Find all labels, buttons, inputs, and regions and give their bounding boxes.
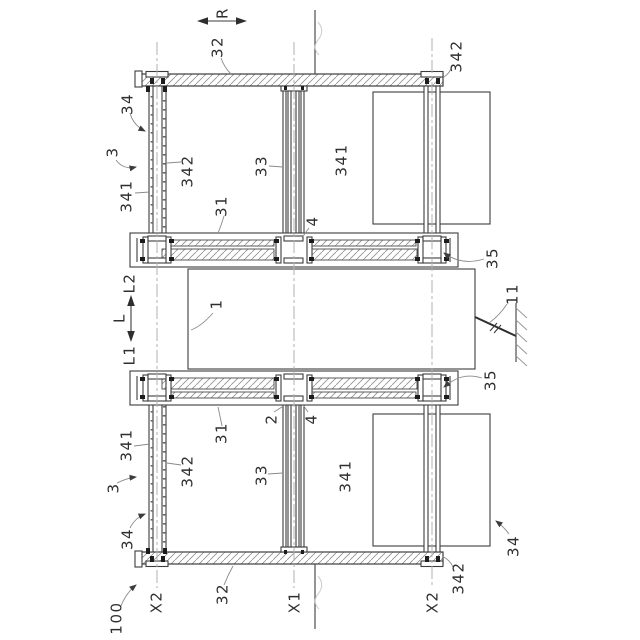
bolt-head xyxy=(140,395,145,399)
bolt-head xyxy=(301,550,304,554)
thread-tick xyxy=(163,118,166,120)
label-post-top: 33 xyxy=(252,155,270,177)
thread-tick xyxy=(151,141,154,143)
bolt-head xyxy=(146,86,150,92)
label-panel-top-right: 341 xyxy=(332,143,350,176)
beam-bottom xyxy=(135,547,443,567)
label-l1: L1 xyxy=(120,345,138,366)
thread-tick xyxy=(151,96,154,98)
bolt-head xyxy=(150,78,154,84)
technical-drawing: R 32 342 34 3 342 341 33 341 31 4 35 11 … xyxy=(0,0,640,640)
bolt-head xyxy=(444,239,449,243)
thread-tick xyxy=(151,501,154,503)
thread-tick xyxy=(163,514,166,516)
thread-tick xyxy=(151,159,154,161)
label-panel-assembly-bottom: 3 xyxy=(104,482,122,493)
label-axis-x1: X1 xyxy=(285,591,303,614)
rail-strip xyxy=(308,378,417,389)
label-l2: L2 xyxy=(120,273,138,294)
thread-tick xyxy=(151,429,154,431)
bolt-head xyxy=(161,556,165,562)
label-apparatus: 100 xyxy=(107,601,125,634)
thread-tick xyxy=(163,478,166,480)
rail-strip xyxy=(308,392,416,398)
label-direction-r: R xyxy=(213,7,231,19)
label-panel-bottom-right: 341 xyxy=(336,459,354,492)
bolt-head xyxy=(436,78,440,84)
thread-tick xyxy=(151,465,154,467)
thread-tick xyxy=(151,474,154,476)
thread-tick xyxy=(151,114,154,116)
thread-tick xyxy=(163,199,166,201)
label-hanger-rod-bottom-left: 342 xyxy=(178,454,196,487)
bolt-head xyxy=(309,257,314,261)
label-beam-top: 32 xyxy=(208,36,226,58)
length-arrow-l xyxy=(127,295,135,342)
thread-tick xyxy=(163,523,166,525)
thread-tick xyxy=(151,492,154,494)
label-panel-top-left: 341 xyxy=(117,179,135,212)
thread-tick xyxy=(151,123,154,125)
thread-tick xyxy=(151,204,154,206)
bolt-head xyxy=(444,395,449,399)
thread-tick xyxy=(151,537,154,539)
rail-strip xyxy=(162,249,274,260)
bolt-head xyxy=(163,548,167,554)
thread-tick xyxy=(151,213,154,215)
thread-tick xyxy=(163,460,166,462)
bolt-head xyxy=(163,86,167,92)
label-panel-bottom-left: 341 xyxy=(117,428,135,461)
label-l: L xyxy=(110,313,128,323)
thread-tick xyxy=(163,145,166,147)
bolt-head xyxy=(284,86,287,90)
bolt-head xyxy=(169,239,174,243)
thread-tick xyxy=(151,177,154,179)
thread-tick xyxy=(151,105,154,107)
label-base-body: 1 xyxy=(207,298,225,309)
thread-tick xyxy=(151,519,154,521)
label-rail-top: 31 xyxy=(212,195,230,217)
thread-tick xyxy=(151,438,154,440)
label-joint-top: 4 xyxy=(303,215,321,226)
thread-tick xyxy=(163,136,166,138)
bolt-head xyxy=(425,556,429,562)
bolt-head xyxy=(169,377,174,381)
thread-tick xyxy=(151,195,154,197)
bolt-head xyxy=(140,239,145,243)
thread-tick xyxy=(163,424,166,426)
bolt-head xyxy=(301,86,304,90)
bolt-head xyxy=(146,548,150,554)
bolt-head xyxy=(309,395,314,399)
label-hanger-bottom-right: 34 xyxy=(504,535,522,557)
bolt-head xyxy=(415,395,420,399)
bolt-head xyxy=(140,257,145,261)
bolt-head xyxy=(309,239,314,243)
rail-strip xyxy=(162,378,274,389)
bolt-head xyxy=(415,239,420,243)
bolt-head xyxy=(150,556,154,562)
thread-tick xyxy=(163,154,166,156)
bolt-head xyxy=(169,257,174,261)
label-rail-bottom: 31 xyxy=(212,422,230,444)
bolt-head xyxy=(274,377,279,381)
bolt-head xyxy=(415,257,420,261)
thread-tick xyxy=(163,532,166,534)
thread-tick xyxy=(151,456,154,458)
thread-tick xyxy=(163,181,166,183)
break-line-bottom xyxy=(315,564,322,629)
bolt-head xyxy=(274,395,279,399)
rail-strip xyxy=(308,249,417,260)
thread-tick xyxy=(163,226,166,228)
bolt-head xyxy=(444,377,449,381)
ground-hatching xyxy=(516,308,527,366)
thread-tick xyxy=(151,186,154,188)
label-anchor: 11 xyxy=(503,283,521,305)
patent-figure: R 32 342 34 3 342 341 33 341 31 4 35 11 … xyxy=(0,0,640,640)
thread-tick xyxy=(163,541,166,543)
label-hanger-top-left: 34 xyxy=(118,93,136,115)
bolt-head xyxy=(415,377,420,381)
thread-tick xyxy=(163,127,166,129)
beam-top xyxy=(135,71,443,91)
thread-tick xyxy=(163,433,166,435)
thread-tick xyxy=(163,442,166,444)
thread-tick xyxy=(151,222,154,224)
bolt-head xyxy=(169,395,174,399)
thread-tick xyxy=(163,451,166,453)
thread-tick xyxy=(163,406,166,408)
label-beam-bottom: 32 xyxy=(213,583,231,605)
label-post-bottom: 33 xyxy=(252,464,270,486)
bolt-head xyxy=(140,377,145,381)
bolt-head xyxy=(425,78,429,84)
bolt-head xyxy=(444,257,449,261)
thread-tick xyxy=(163,100,166,102)
beam-bottom-end-cap xyxy=(135,551,142,567)
beam-top-end-cap xyxy=(135,71,142,87)
bolt-head xyxy=(274,239,279,243)
label-axis-x2-left: X2 xyxy=(147,591,165,614)
thread-tick xyxy=(151,483,154,485)
thread-tick xyxy=(163,469,166,471)
break-line-top xyxy=(315,10,322,74)
thread-tick xyxy=(151,132,154,134)
label-carriage: 2 xyxy=(262,413,280,424)
bolt-head xyxy=(284,550,287,554)
label-hanger-rod-bottom-right: 342 xyxy=(449,561,467,594)
label-hanger-rod-top-right: 342 xyxy=(447,39,465,72)
rail-strip xyxy=(170,240,274,246)
bolt-head xyxy=(436,556,440,562)
thread-tick xyxy=(163,109,166,111)
rail-strip xyxy=(170,392,274,398)
thread-tick xyxy=(163,487,166,489)
thread-tick xyxy=(163,163,166,165)
label-roller-top: 35 xyxy=(483,247,501,269)
thread-tick xyxy=(163,496,166,498)
thread-tick xyxy=(151,510,154,512)
label-panel-assembly-top: 3 xyxy=(103,146,121,157)
thread-tick xyxy=(163,208,166,210)
thread-tick xyxy=(163,217,166,219)
bolt-head xyxy=(309,377,314,381)
thread-tick xyxy=(151,447,154,449)
thread-tick xyxy=(151,168,154,170)
bolt-head xyxy=(274,257,279,261)
thread-tick xyxy=(163,415,166,417)
bolt-head xyxy=(161,78,165,84)
label-roller-bottom: 35 xyxy=(481,369,499,391)
label-hanger-rod-top-left: 342 xyxy=(178,154,196,187)
label-hanger-bottom-left: 34 xyxy=(118,528,136,550)
thread-tick xyxy=(151,411,154,413)
thread-tick xyxy=(163,505,166,507)
label-axis-x2-right: X2 xyxy=(423,591,441,614)
thread-tick xyxy=(151,420,154,422)
thread-tick xyxy=(163,190,166,192)
thread-tick xyxy=(151,528,154,530)
label-joint-bottom: 4 xyxy=(302,413,320,424)
rail-strip xyxy=(308,240,416,246)
thread-tick xyxy=(151,150,154,152)
thread-tick xyxy=(163,172,166,174)
